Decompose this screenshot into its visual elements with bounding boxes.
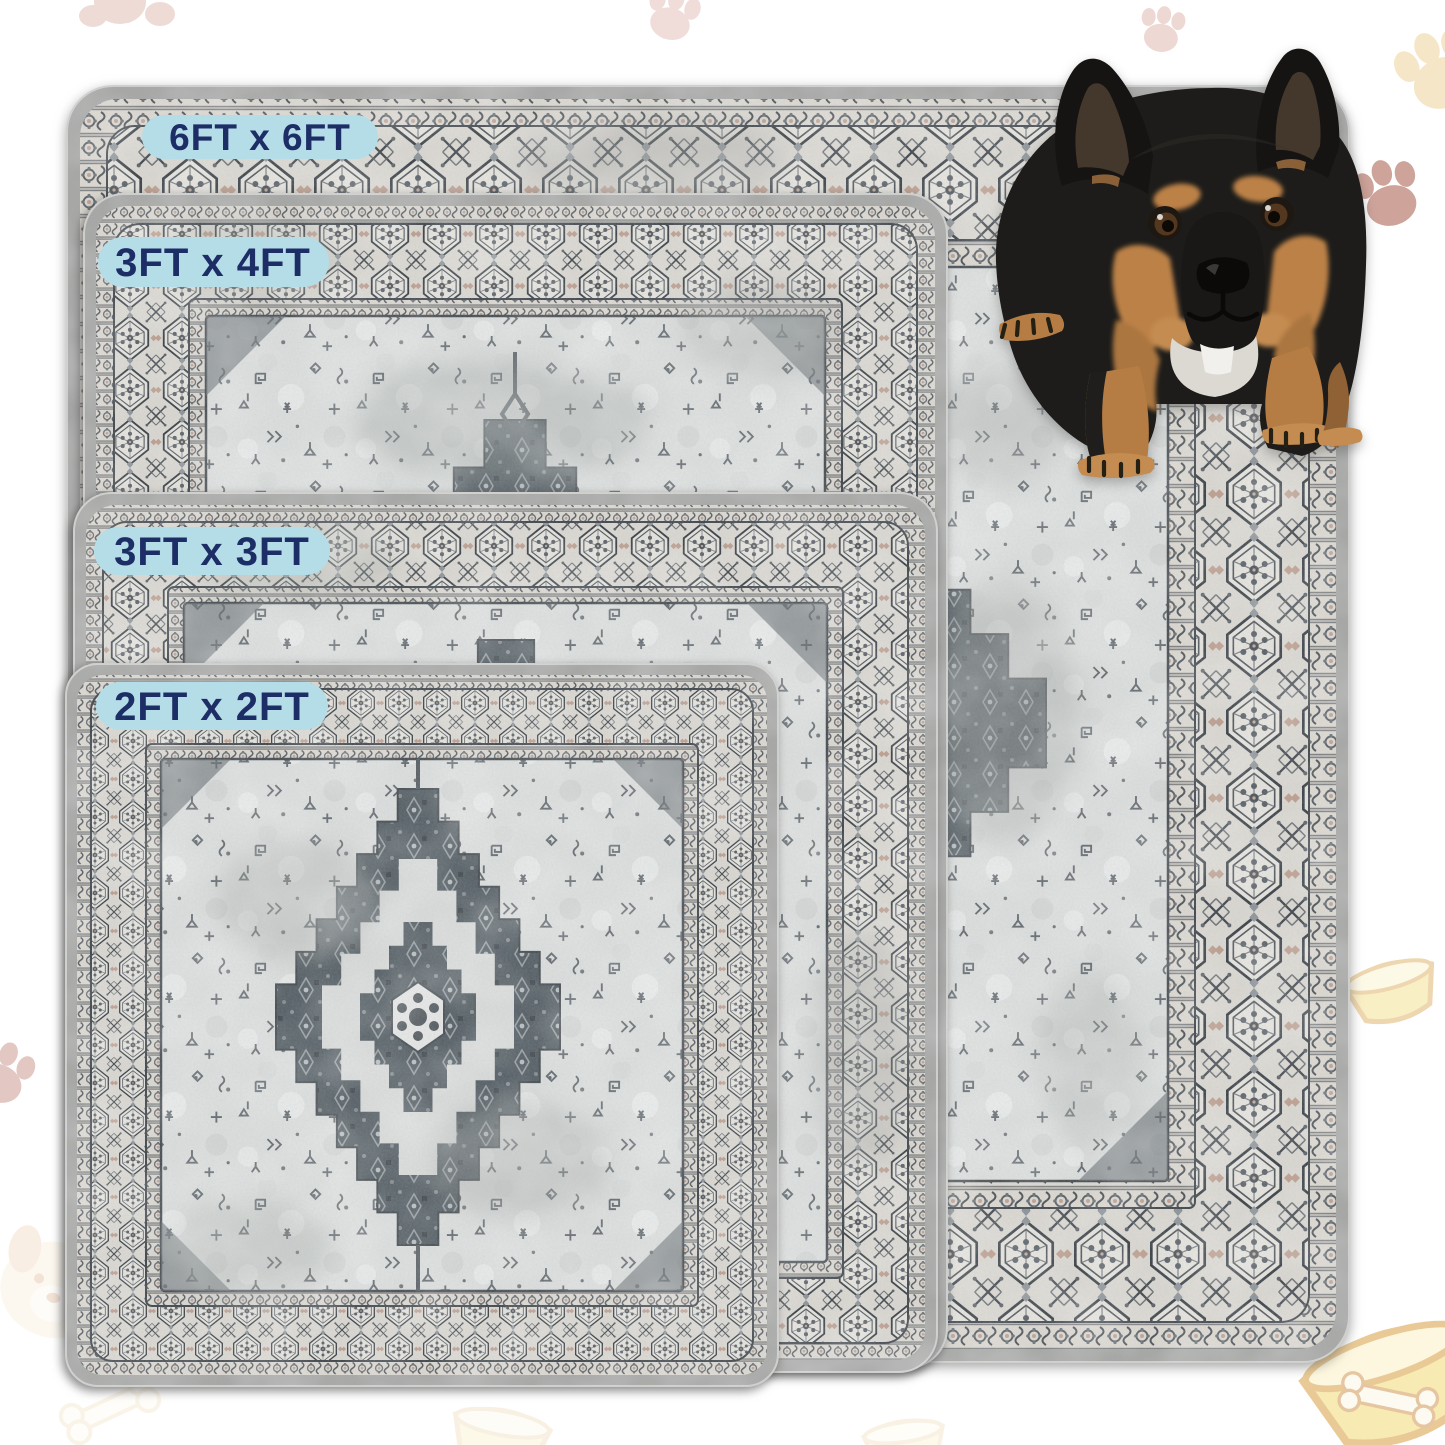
svg-text:6FT x 6FT: 6FT x 6FT xyxy=(169,117,351,158)
svg-text:2FT x 2FT: 2FT x 2FT xyxy=(114,685,310,729)
svg-text:3FT x 4FT: 3FT x 4FT xyxy=(115,241,311,285)
svg-text:3FT x 3FT: 3FT x 3FT xyxy=(114,530,310,574)
